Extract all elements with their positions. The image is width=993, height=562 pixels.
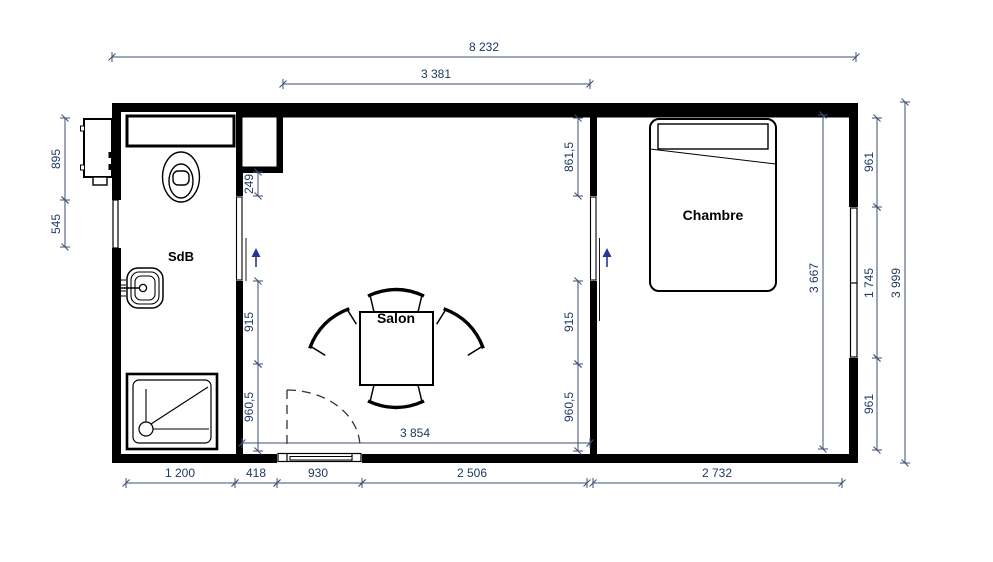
closet <box>236 111 283 173</box>
entrance-door <box>277 453 362 464</box>
bathroom-window <box>110 200 122 248</box>
door-leaf <box>290 457 352 461</box>
shower-drain <box>139 422 153 436</box>
dim-label-top-salon: 3 381 <box>421 67 451 81</box>
dim-label-top-total: 8 232 <box>469 40 499 54</box>
water-heater-tab <box>93 177 107 185</box>
bedroom-window <box>849 207 860 358</box>
bathroom-pocket-door <box>235 196 247 281</box>
room-label-chambre: Chambre <box>683 207 744 223</box>
dim-label-salon-left-mid: 915 <box>242 312 256 332</box>
dim-label-salon-right-lower: 960,5 <box>562 392 576 422</box>
dim-label-right-total: 3 999 <box>889 268 903 298</box>
dim-label-bottom-bedroom: 2 732 <box>702 466 732 480</box>
dim-label-salon-left-lower: 960,5 <box>242 392 256 422</box>
dim-label-bottom-bathroom: 1 200 <box>165 466 195 480</box>
bathroom-counter <box>127 116 234 146</box>
pocket-leaf <box>237 197 243 280</box>
dim-label-bottom-wall: 418 <box>246 466 266 480</box>
room-label-sdb: SdB <box>168 249 194 264</box>
bed-pillow <box>658 124 768 149</box>
bed <box>650 119 776 291</box>
dim-label-salon-partition-upper: 861,5 <box>562 142 576 172</box>
water-heater-pipe-bottom <box>109 164 113 170</box>
dim-label-bottom-door: 930 <box>308 466 328 480</box>
top-interior-lining <box>283 111 850 118</box>
window-frame <box>113 200 118 248</box>
dim-label-right-upper: 961 <box>862 152 876 172</box>
water-heater <box>81 119 113 185</box>
dim-label-closet-depth: 249 <box>242 174 256 194</box>
water-heater-body <box>84 119 112 177</box>
closet-interior <box>243 118 277 167</box>
shower <box>127 374 217 449</box>
water-heater-mount-bottom <box>81 165 85 170</box>
water-heater-mount-top <box>81 126 85 131</box>
toilet-flush <box>173 171 189 185</box>
water-heater-pipe-top <box>109 152 113 158</box>
dim-label-bottom-salon: 2 506 <box>457 466 487 480</box>
dim-label-salon-right-mid: 915 <box>562 312 576 332</box>
dim-label-salon-width: 3 854 <box>400 426 430 440</box>
dim-label-left-upper: 895 <box>49 149 63 169</box>
dim-label-right-window: 1 745 <box>862 268 876 298</box>
floor-plan-page: SdB Salon Chambre 8 232 3 381 895 545 96… <box>0 0 993 562</box>
faucet-drain <box>139 284 146 291</box>
dim-label-right-lower: 961 <box>862 394 876 414</box>
dim-label-left-window: 545 <box>49 214 63 234</box>
dim-label-bedroom-depth: 3 667 <box>807 263 821 293</box>
bedroom-partition-wall <box>590 115 597 454</box>
room-label-salon: Salon <box>377 310 415 326</box>
toilet <box>163 152 200 202</box>
floor-plan-svg: SdB Salon Chambre 8 232 3 381 895 545 96… <box>0 0 993 562</box>
pocket-leaf <box>591 197 597 280</box>
